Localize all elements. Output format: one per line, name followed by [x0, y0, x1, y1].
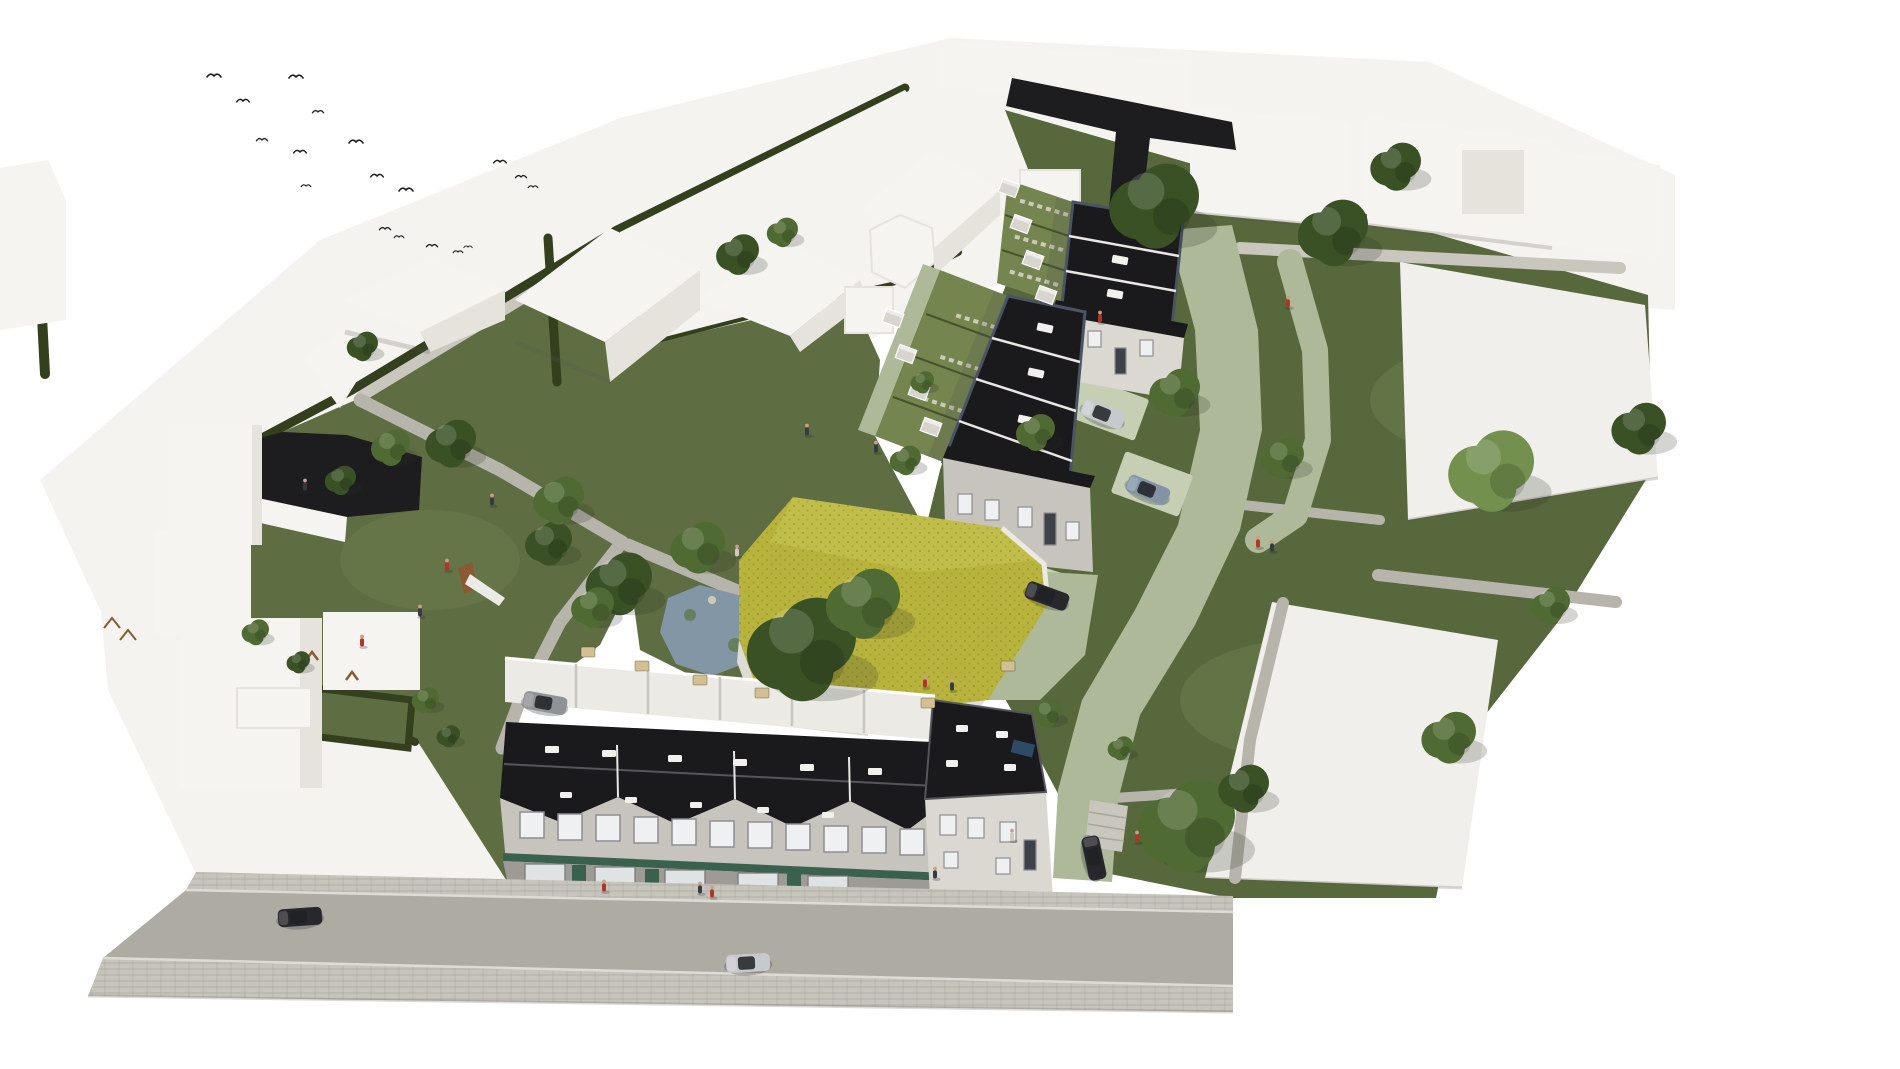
- skylight: [800, 764, 814, 771]
- window: [672, 819, 696, 845]
- dormer: [757, 807, 769, 813]
- terrace-table: [693, 675, 707, 685]
- skylight: [733, 759, 747, 766]
- walled-garden: [312, 688, 412, 748]
- render-canvas: [0, 0, 1900, 1069]
- street: [88, 872, 1233, 1012]
- skylight: [956, 725, 968, 732]
- site-render: [0, 0, 1900, 1069]
- window: [968, 818, 984, 838]
- dormer: [560, 792, 572, 798]
- pond-rock: [708, 596, 716, 604]
- skylight: [946, 760, 958, 767]
- door: [1024, 840, 1036, 870]
- terrace-table: [1001, 661, 1015, 671]
- window: [710, 821, 734, 847]
- window: [958, 494, 972, 514]
- door: [1044, 513, 1056, 545]
- window: [520, 812, 544, 838]
- dormer: [625, 797, 637, 803]
- window: [985, 500, 999, 520]
- dormer: [822, 812, 834, 818]
- skylight: [668, 755, 682, 762]
- window: [786, 824, 810, 850]
- terrace-table: [581, 647, 595, 657]
- pond-plant: [684, 609, 696, 621]
- window: [940, 815, 956, 835]
- window: [1088, 331, 1101, 347]
- window: [634, 817, 658, 843]
- window: [558, 814, 582, 840]
- window: [1140, 340, 1153, 356]
- skylight: [602, 750, 616, 757]
- terrace-table: [921, 698, 935, 708]
- window: [900, 829, 924, 855]
- window: [862, 827, 886, 853]
- window: [596, 815, 620, 841]
- skylight: [545, 746, 559, 753]
- window: [1066, 522, 1079, 540]
- window: [748, 822, 772, 848]
- dormer: [690, 802, 702, 808]
- skylight: [996, 731, 1008, 738]
- white-box: [323, 612, 420, 690]
- white-box-shade: [252, 425, 262, 545]
- hedge-garden: [312, 688, 412, 748]
- window: [996, 858, 1010, 874]
- edge-house: [0, 160, 66, 330]
- skylight: [868, 768, 882, 775]
- window: [824, 826, 848, 852]
- window: [944, 852, 958, 868]
- terrace-table: [635, 661, 649, 671]
- north-box: [1462, 150, 1524, 214]
- white-shed: [237, 688, 311, 728]
- white-box: [168, 425, 262, 545]
- north-slab: [1552, 150, 1660, 258]
- terrace-table: [755, 688, 769, 698]
- window: [1018, 507, 1032, 527]
- skylight: [1004, 764, 1016, 771]
- door: [1115, 348, 1126, 374]
